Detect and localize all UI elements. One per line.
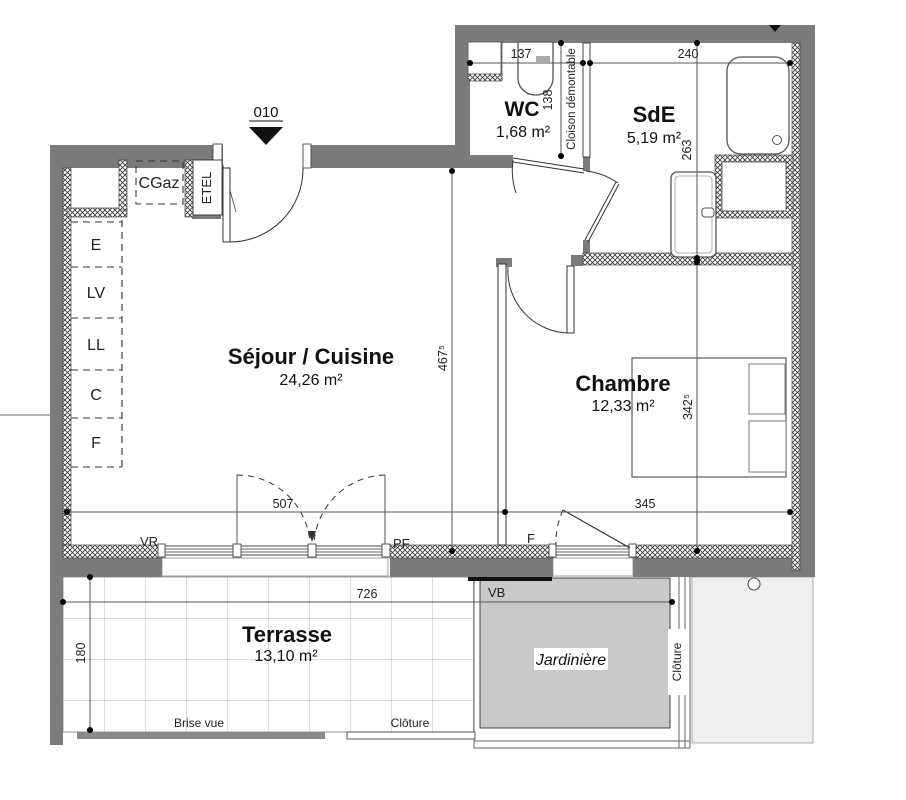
- neighbor-terrace: [692, 577, 813, 743]
- wall-top-left-b: [303, 145, 470, 168]
- cloture-bottom-label: Clôture: [391, 716, 430, 730]
- wall-sde-west-post-top: [583, 157, 590, 171]
- washer-slot: [722, 162, 786, 211]
- jardiniere-title: Jardinière: [535, 652, 606, 669]
- neighbor-post: [748, 578, 760, 590]
- dim-sde-depth: 263: [680, 140, 694, 161]
- wall-bottom-a: [63, 558, 162, 577]
- wall-bottom-b: [390, 558, 553, 577]
- toilet-flush: [536, 56, 550, 62]
- chambre-title: Chambre: [575, 371, 670, 396]
- cgaz-label: CGaz: [139, 175, 180, 192]
- dim-terrasse-depth: 180: [74, 643, 88, 664]
- pillow: [749, 364, 785, 414]
- window-f: [553, 546, 633, 555]
- cloture-right-label: Clôture: [670, 642, 684, 681]
- dim-wc-depth: 138: [541, 90, 555, 111]
- entrance-door-leaf: [223, 168, 230, 242]
- wall-right: [800, 25, 815, 577]
- chambre-area: 12,33 m²: [591, 398, 655, 415]
- hatch-bottom-c: [633, 545, 792, 558]
- sde-title: SdE: [633, 102, 676, 127]
- sejour-title: Séjour / Cuisine: [228, 344, 394, 369]
- dim-wc-width: 137: [511, 47, 532, 61]
- dim-sde-width: 240: [678, 47, 699, 61]
- wc-duct: [468, 42, 501, 74]
- brise-vue-bar: [77, 732, 325, 739]
- dim-chambre-depth: 342⁵: [681, 394, 695, 420]
- wc-title: WC: [505, 98, 540, 121]
- cloison-demontable-wall: [583, 43, 590, 157]
- hatch-left: [63, 168, 71, 545]
- vanity-faucet: [702, 208, 714, 217]
- pillow: [749, 421, 786, 472]
- dim-chambre-width: 345: [635, 497, 656, 511]
- pf-label: PF: [393, 536, 410, 551]
- partition-sejour-chambre: [498, 264, 506, 545]
- dim-sejour-depth: 467⁵: [436, 345, 450, 371]
- sejour-area: 24,26 m²: [279, 372, 343, 389]
- hatch-duct-right: [119, 160, 127, 210]
- etel-label: ETEL: [199, 172, 214, 205]
- floor-plan-drawing: 010 WC 1,68 m² SdE 5,19 m² Séjour / Cuis…: [0, 0, 906, 800]
- pf-threshold: [162, 558, 388, 576]
- chambre-door-leaf: [567, 266, 574, 333]
- wall-wc-south: [455, 155, 513, 168]
- wc-area: 1,68 m²: [496, 124, 551, 141]
- sde-area: 5,19 m²: [627, 130, 682, 147]
- wall-chambre-door-post-right: [571, 255, 583, 266]
- terrasse-area: 13,10 m²: [254, 648, 318, 665]
- vb-label: VB: [488, 585, 505, 600]
- wall-left: [50, 145, 63, 745]
- floor-plan-page: 010 WC 1,68 m² SdE 5,19 m² Séjour / Cuis…: [0, 0, 906, 800]
- hatch-right: [792, 43, 800, 570]
- brise-vue-label: Brise vue: [174, 716, 224, 730]
- hatch-etel-left: [185, 160, 193, 217]
- dim-terrasse-width: 726: [357, 587, 378, 601]
- terrasse-title: Terrasse: [242, 622, 332, 647]
- hatch-duct-bottom: [67, 208, 127, 217]
- f-threshold: [553, 558, 633, 576]
- appliance-ll-label: LL: [87, 337, 105, 354]
- unit-number: 010: [253, 104, 278, 121]
- entrance-post-right: [303, 144, 311, 168]
- cloison-demontable-label: Cloison démontable: [566, 48, 578, 150]
- appliance-e-label: E: [91, 237, 102, 254]
- appliance-f-label: F: [91, 435, 101, 452]
- vr-label: VR: [140, 534, 158, 549]
- f-window-label: F: [527, 531, 535, 546]
- cloture-bar: [347, 732, 475, 739]
- wall-block-top: [455, 25, 815, 43]
- wall-sde-west-post-bottom: [583, 240, 590, 253]
- appliance-c-label: C: [90, 387, 102, 404]
- shower-drain: [773, 136, 782, 145]
- appliance-lv-label: LV: [87, 285, 106, 302]
- dim-sejour-width: 507: [273, 497, 294, 511]
- window-pf: [160, 546, 390, 555]
- hatch-bottom-b: [390, 545, 553, 558]
- wall-bottom-c: [633, 558, 815, 577]
